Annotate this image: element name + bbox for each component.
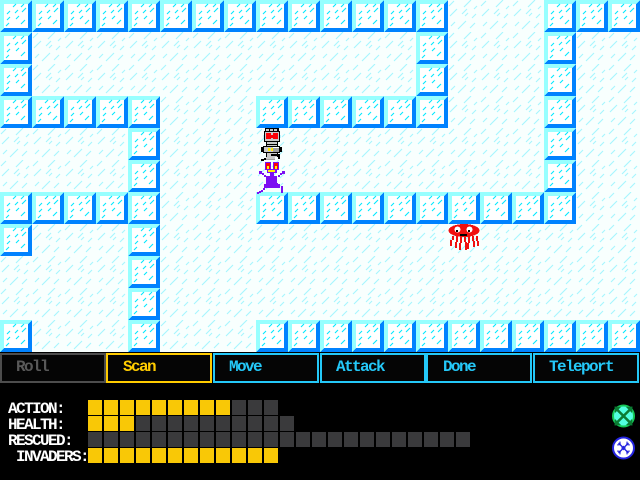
svg-text:INVADERS:: INVADERS: bbox=[16, 448, 88, 466]
svg-text:Teleport: Teleport bbox=[549, 358, 614, 376]
svg-text:Done: Done bbox=[443, 358, 476, 376]
svg-text:Attack: Attack bbox=[336, 358, 386, 376]
svg-text:Roll: Roll bbox=[16, 358, 49, 376]
svg-text:Scan: Scan bbox=[123, 358, 156, 376]
svg-text:Move: Move bbox=[229, 358, 262, 376]
